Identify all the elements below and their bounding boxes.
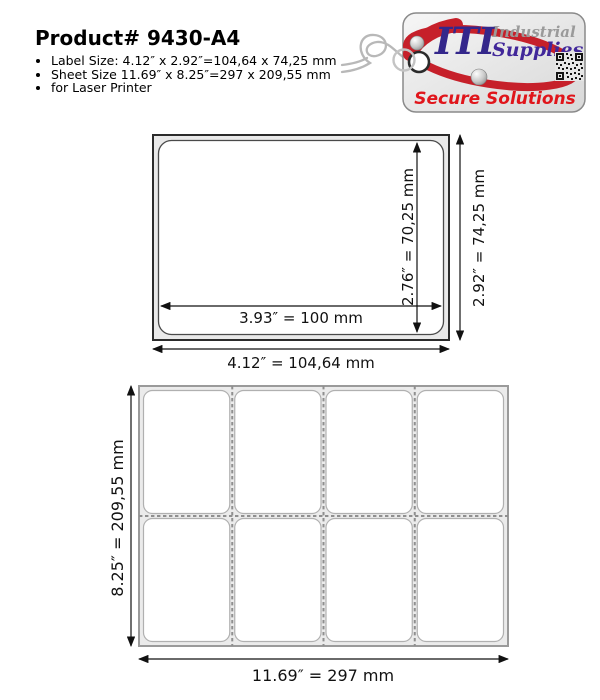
inner-height-dimension: 2.76″ = 70,25 mm: [399, 168, 417, 306]
sheet-label-cell: [235, 391, 321, 514]
company-logo: ITI Industrial Supplies Secure Solutions: [340, 8, 592, 120]
single-label-diagram: 2.76″ = 70,25 mm 3.93″ = 100 mm 2.92″ = …: [140, 125, 505, 380]
swoosh-sphere-top: [410, 36, 424, 50]
sheet-label-cell: [417, 391, 503, 514]
qr-code: [555, 52, 584, 81]
sheet-label-cell: [144, 519, 230, 642]
outer-height-dimension: 2.92″ = 74,25 mm: [470, 169, 488, 307]
security-wire-strand: [342, 58, 367, 65]
inner-width-dimension: 3.93″ = 100 mm: [239, 309, 363, 327]
sheet-label-cell: [235, 519, 321, 642]
sheet-height-dimension: 8.25″ = 209,55 mm: [108, 439, 127, 596]
outer-width-dimension: 4.12″ = 104,64 mm: [227, 354, 375, 372]
security-wire: [342, 35, 403, 72]
sheet-layout-diagram: 8.25″ = 209,55 mm 11.69″ = 297 mm: [85, 378, 530, 700]
sheet-label-cell: [326, 391, 412, 514]
sheet-label-cell: [417, 519, 503, 642]
swoosh-sphere-bottom: [471, 69, 487, 85]
logo-iti-text: ITI: [434, 19, 497, 63]
sheet-label-cell: [144, 391, 230, 514]
sheet-label-cell: [326, 519, 412, 642]
logo-tagline-text: Secure Solutions: [414, 89, 576, 109]
sheet-width-dimension: 11.69″ = 297 mm: [252, 666, 394, 685]
